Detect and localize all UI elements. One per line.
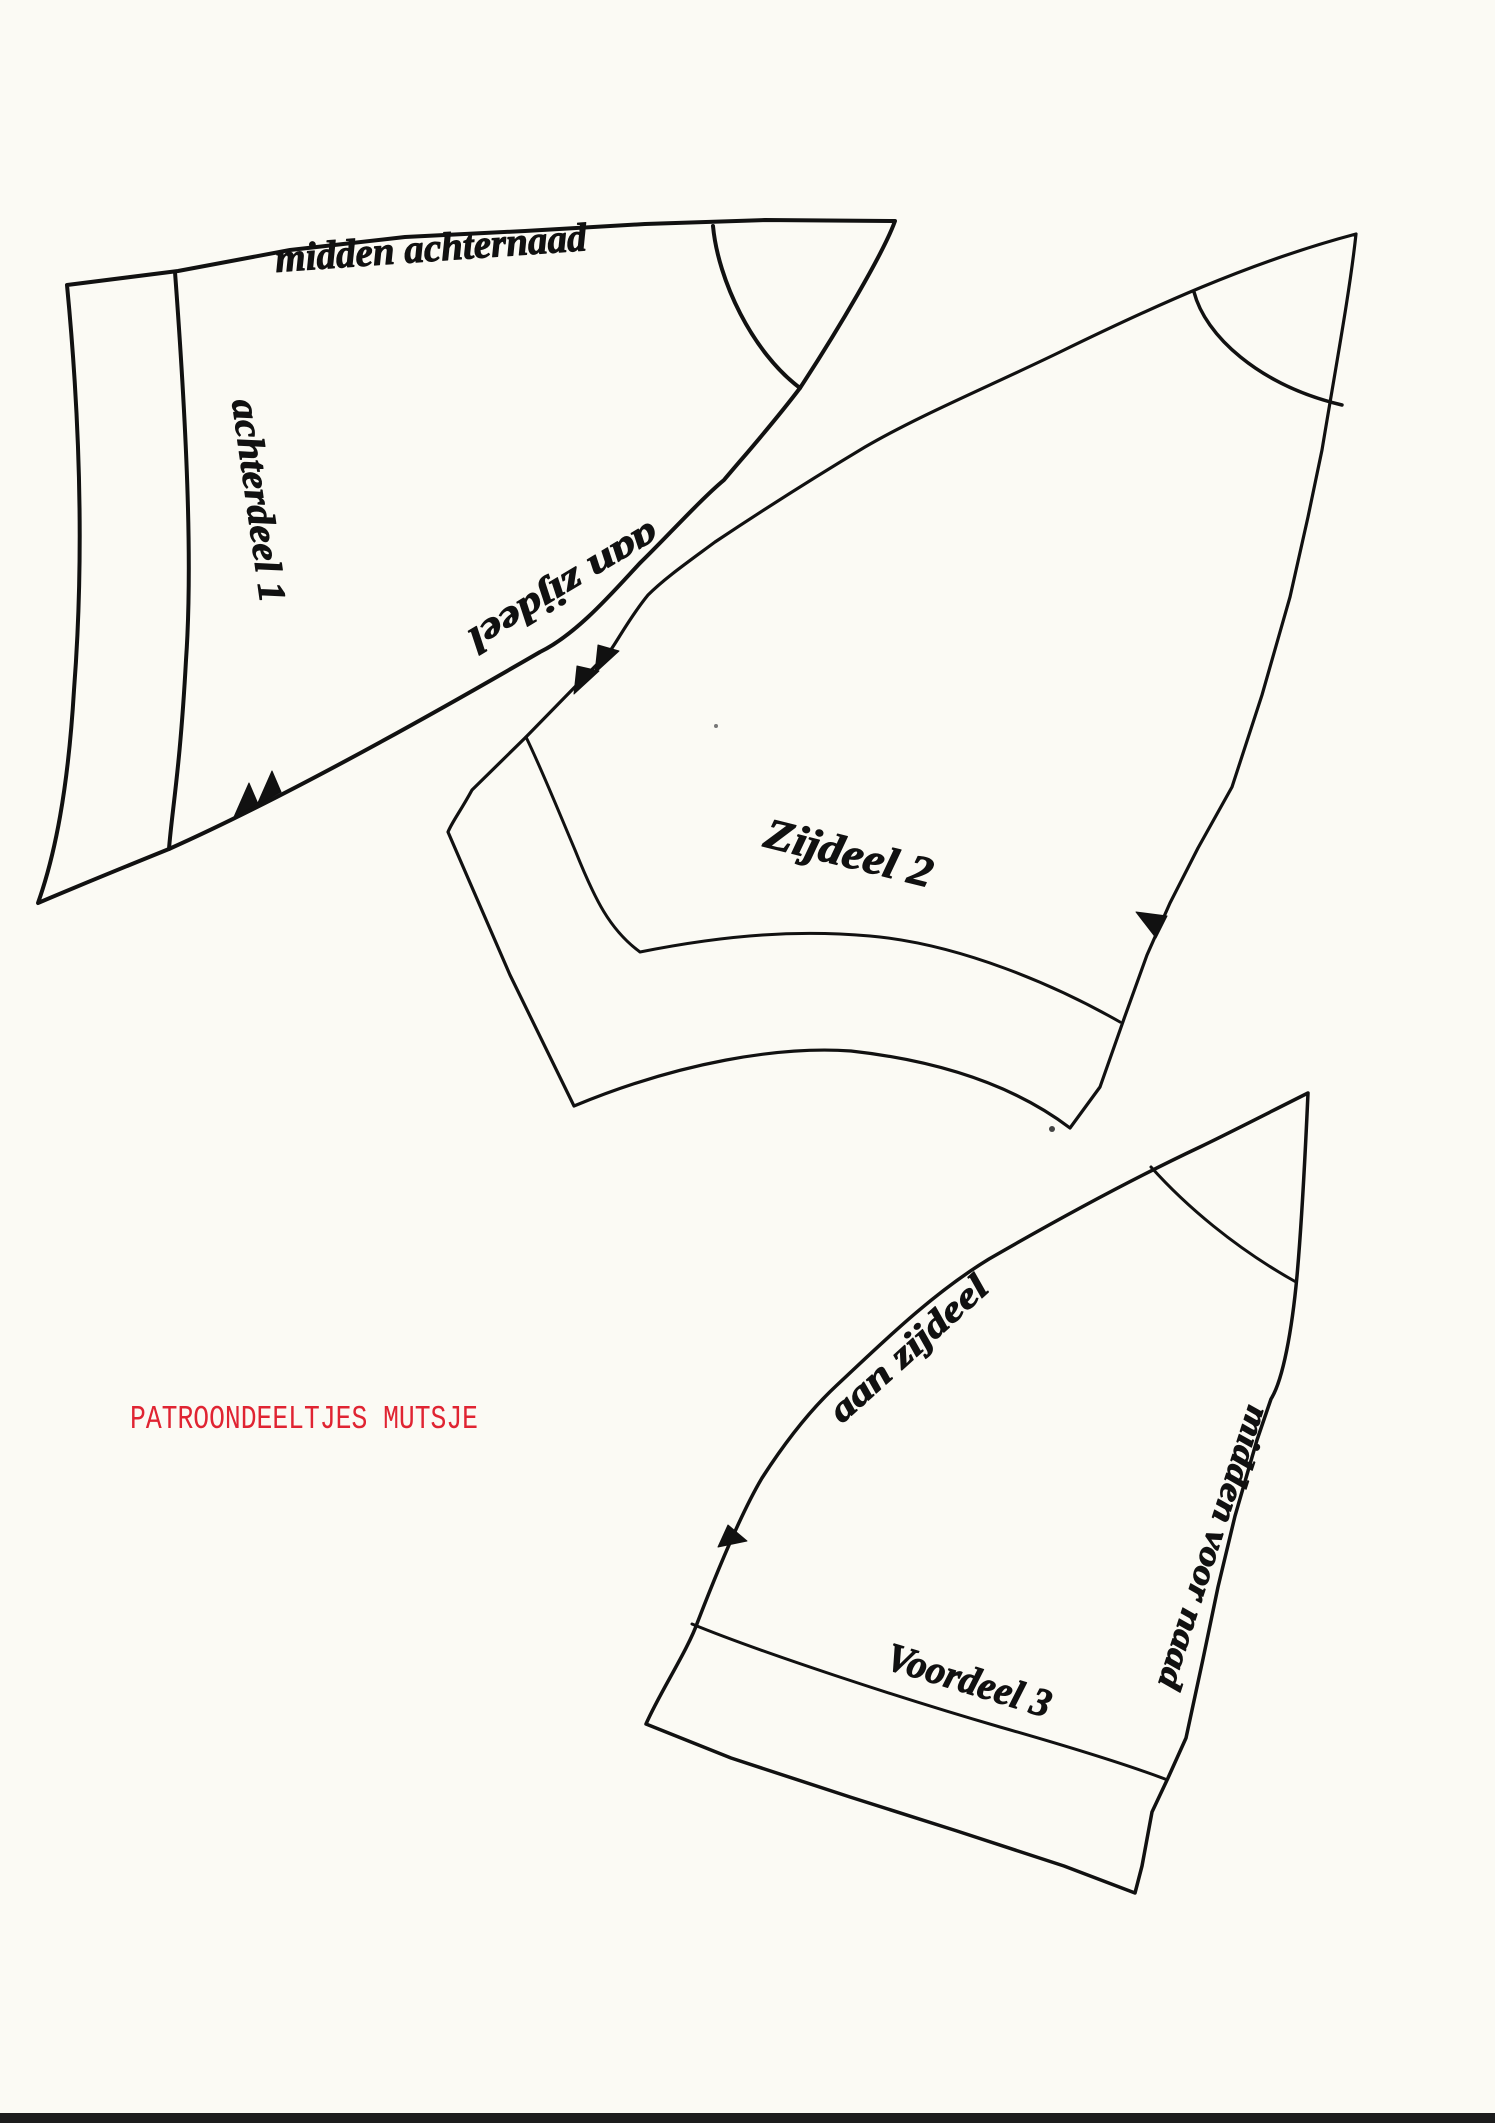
- svg-text:PATROONDEELTJES MUTSJE: PATROONDEELTJES MUTSJE: [130, 1401, 478, 1438]
